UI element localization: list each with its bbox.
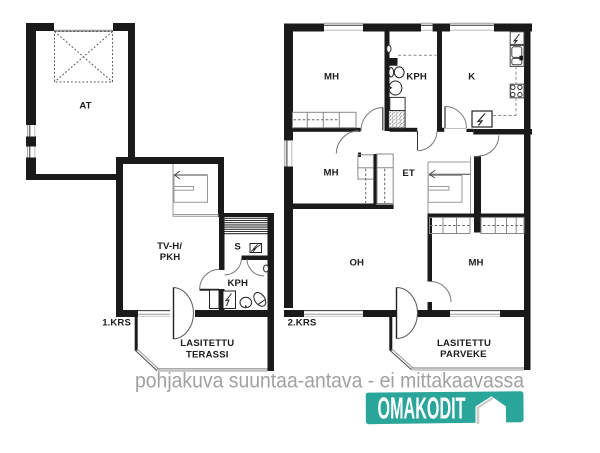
svg-text:KPH: KPH	[406, 72, 427, 83]
svg-text:PARVEKE: PARVEKE	[440, 349, 486, 360]
svg-text:MH: MH	[468, 258, 483, 269]
svg-text:AT: AT	[79, 100, 91, 111]
svg-text:OMAKODIT: OMAKODIT	[378, 391, 466, 425]
svg-text:TERASSI: TERASSI	[186, 349, 229, 360]
svg-text:TV-H/: TV-H/	[157, 241, 182, 252]
svg-text:K: K	[468, 72, 475, 83]
svg-text:2.KRS: 2.KRS	[288, 318, 317, 329]
svg-text:MH: MH	[324, 71, 339, 82]
svg-text:pohjakuva suuntaa-antava - ei: pohjakuva suuntaa-antava - ei mittakaava…	[135, 369, 524, 393]
svg-text:KPH: KPH	[228, 278, 249, 289]
svg-text:LASITETTU: LASITETTU	[437, 338, 491, 349]
svg-text:LASITETTU: LASITETTU	[180, 338, 234, 349]
svg-text:1.KRS: 1.KRS	[102, 317, 131, 328]
svg-text:S: S	[234, 241, 241, 252]
svg-text:OH: OH	[350, 258, 365, 269]
svg-text:MH: MH	[324, 167, 339, 178]
svg-text:ET: ET	[402, 168, 414, 179]
svg-text:PKH: PKH	[160, 252, 181, 263]
